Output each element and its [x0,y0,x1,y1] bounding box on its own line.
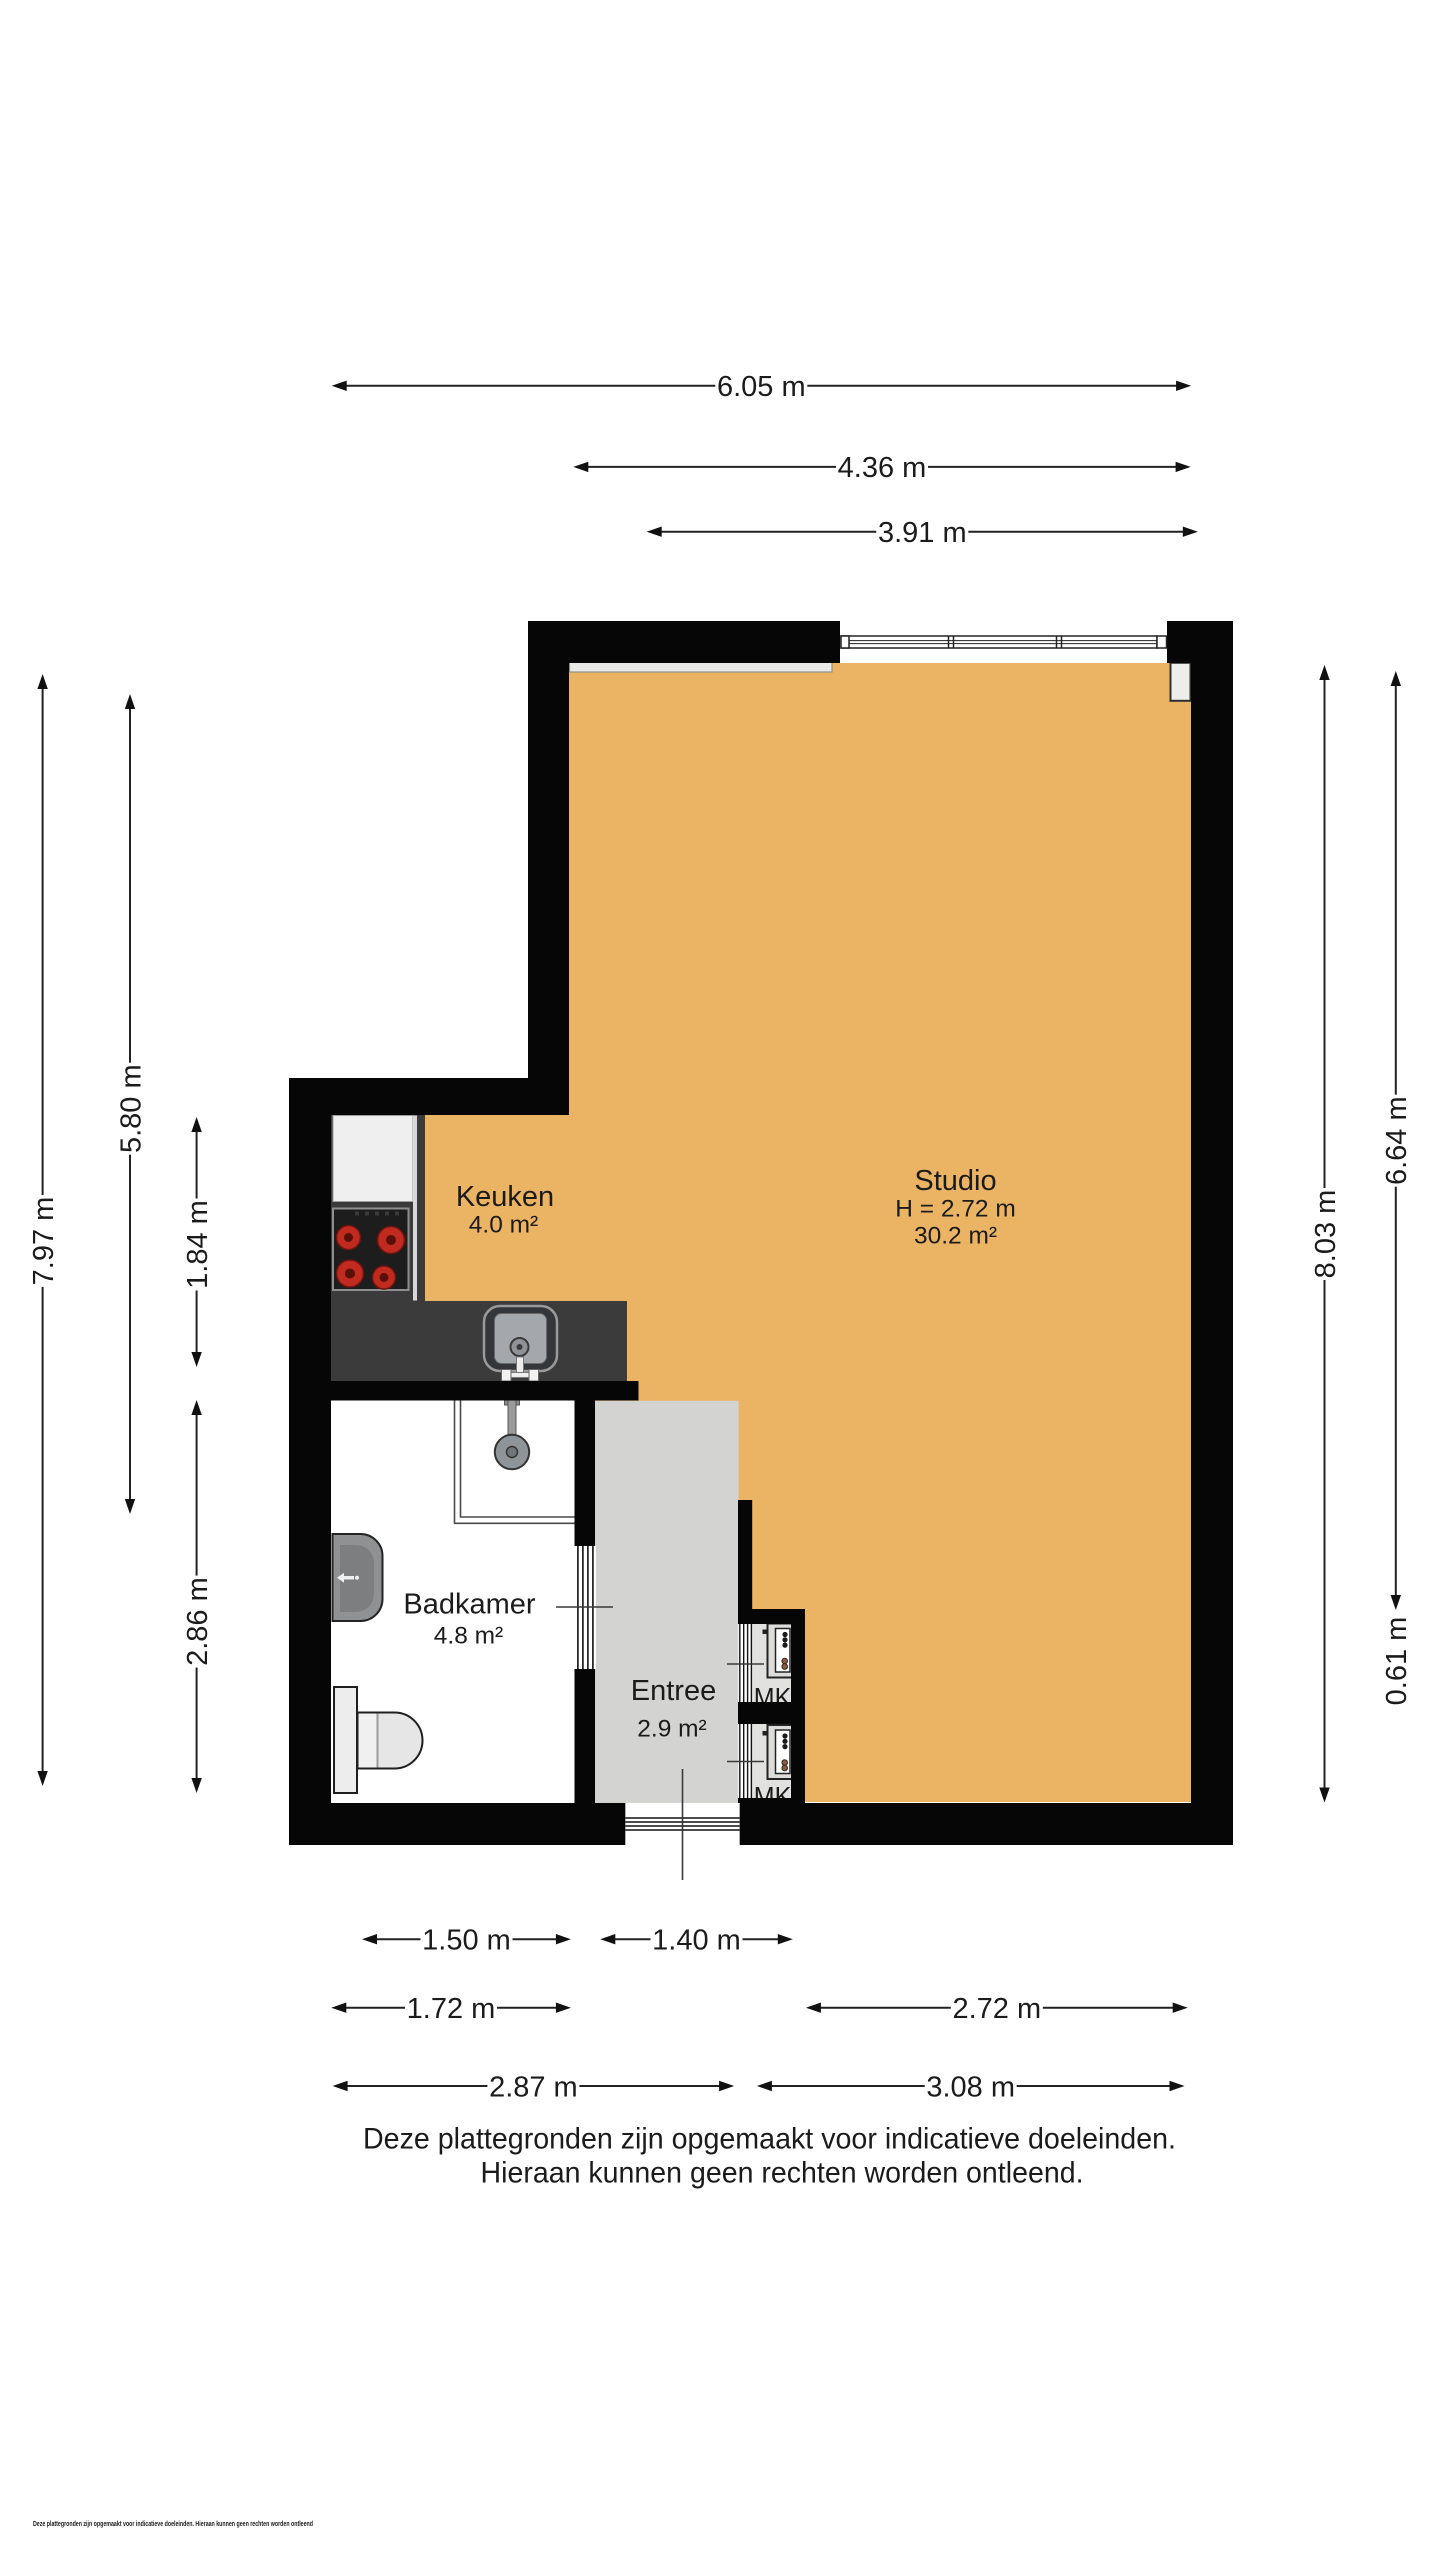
svg-text:4.8 m²: 4.8 m² [434,1623,503,1650]
svg-text:Entree: Entree [631,1675,716,1707]
svg-text:1.40 m: 1.40 m [652,1925,741,1957]
svg-text:6.05 m: 6.05 m [717,371,806,403]
svg-text:Deze plattegronden zijn opgema: Deze plattegronden zijn opgemaakt voor i… [363,2123,1176,2156]
svg-text:2.72 m: 2.72 m [952,1993,1041,2025]
svg-text:2.9 m²: 2.9 m² [637,1716,706,1743]
svg-text:8.03 m: 8.03 m [1310,1190,1342,1279]
svg-text:3.91 m: 3.91 m [878,517,967,549]
svg-text:4.36 m: 4.36 m [838,452,927,484]
svg-text:3.08 m: 3.08 m [926,2071,1015,2103]
svg-text:Deze plattegronden zijn opgema: Deze plattegronden zijn opgemaakt voor i… [33,2521,313,2528]
svg-text:Hieraan kunnen geen rechten wo: Hieraan kunnen geen rechten worden ontle… [481,2157,1084,2190]
svg-text:4.0 m²: 4.0 m² [469,1212,538,1239]
svg-text:0.61 m: 0.61 m [1381,1617,1413,1706]
svg-text:7.97 m: 7.97 m [28,1197,60,1286]
svg-text:Studio: Studio [914,1165,996,1197]
svg-text:2.87 m: 2.87 m [489,2071,578,2103]
svg-text:1.72 m: 1.72 m [407,1993,496,2025]
svg-text:2.86 m: 2.86 m [182,1577,214,1666]
svg-text:1.84 m: 1.84 m [182,1200,214,1289]
svg-text:30.2 m²: 30.2 m² [914,1223,997,1250]
svg-text:H = 2.72 m: H = 2.72 m [895,1196,1016,1223]
svg-text:1.50 m: 1.50 m [422,1925,511,1957]
svg-text:5.80 m: 5.80 m [115,1064,147,1153]
svg-text:Badkamer: Badkamer [403,1589,536,1621]
svg-text:6.64 m: 6.64 m [1381,1096,1413,1185]
svg-text:Keuken: Keuken [456,1181,554,1213]
